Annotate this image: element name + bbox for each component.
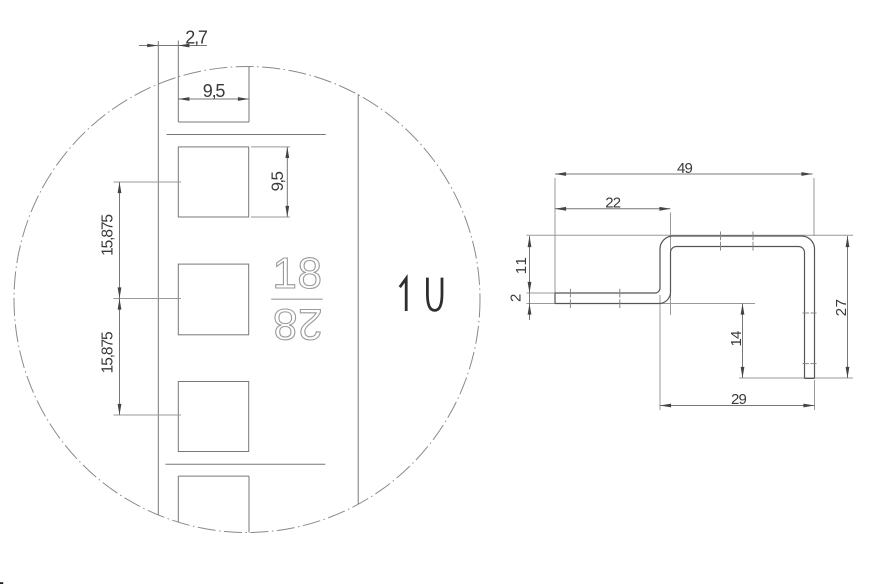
svg-text:49: 49 (677, 160, 693, 177)
svg-text:22: 22 (605, 195, 621, 212)
svg-text:15,875: 15,875 (100, 332, 117, 373)
svg-text:2,7: 2,7 (185, 28, 208, 48)
svg-text:28: 28 (272, 300, 322, 349)
svg-text:29: 29 (731, 391, 747, 408)
svg-text:18: 18 (272, 249, 322, 298)
svg-text:11: 11 (513, 256, 530, 274)
svg-text:14: 14 (728, 331, 745, 347)
svg-text:27: 27 (833, 299, 850, 317)
svg-text:15,875: 15,875 (100, 215, 117, 256)
svg-text:2: 2 (508, 294, 525, 302)
svg-text:9,5: 9,5 (203, 81, 226, 101)
svg-text:9,5: 9,5 (268, 171, 287, 191)
